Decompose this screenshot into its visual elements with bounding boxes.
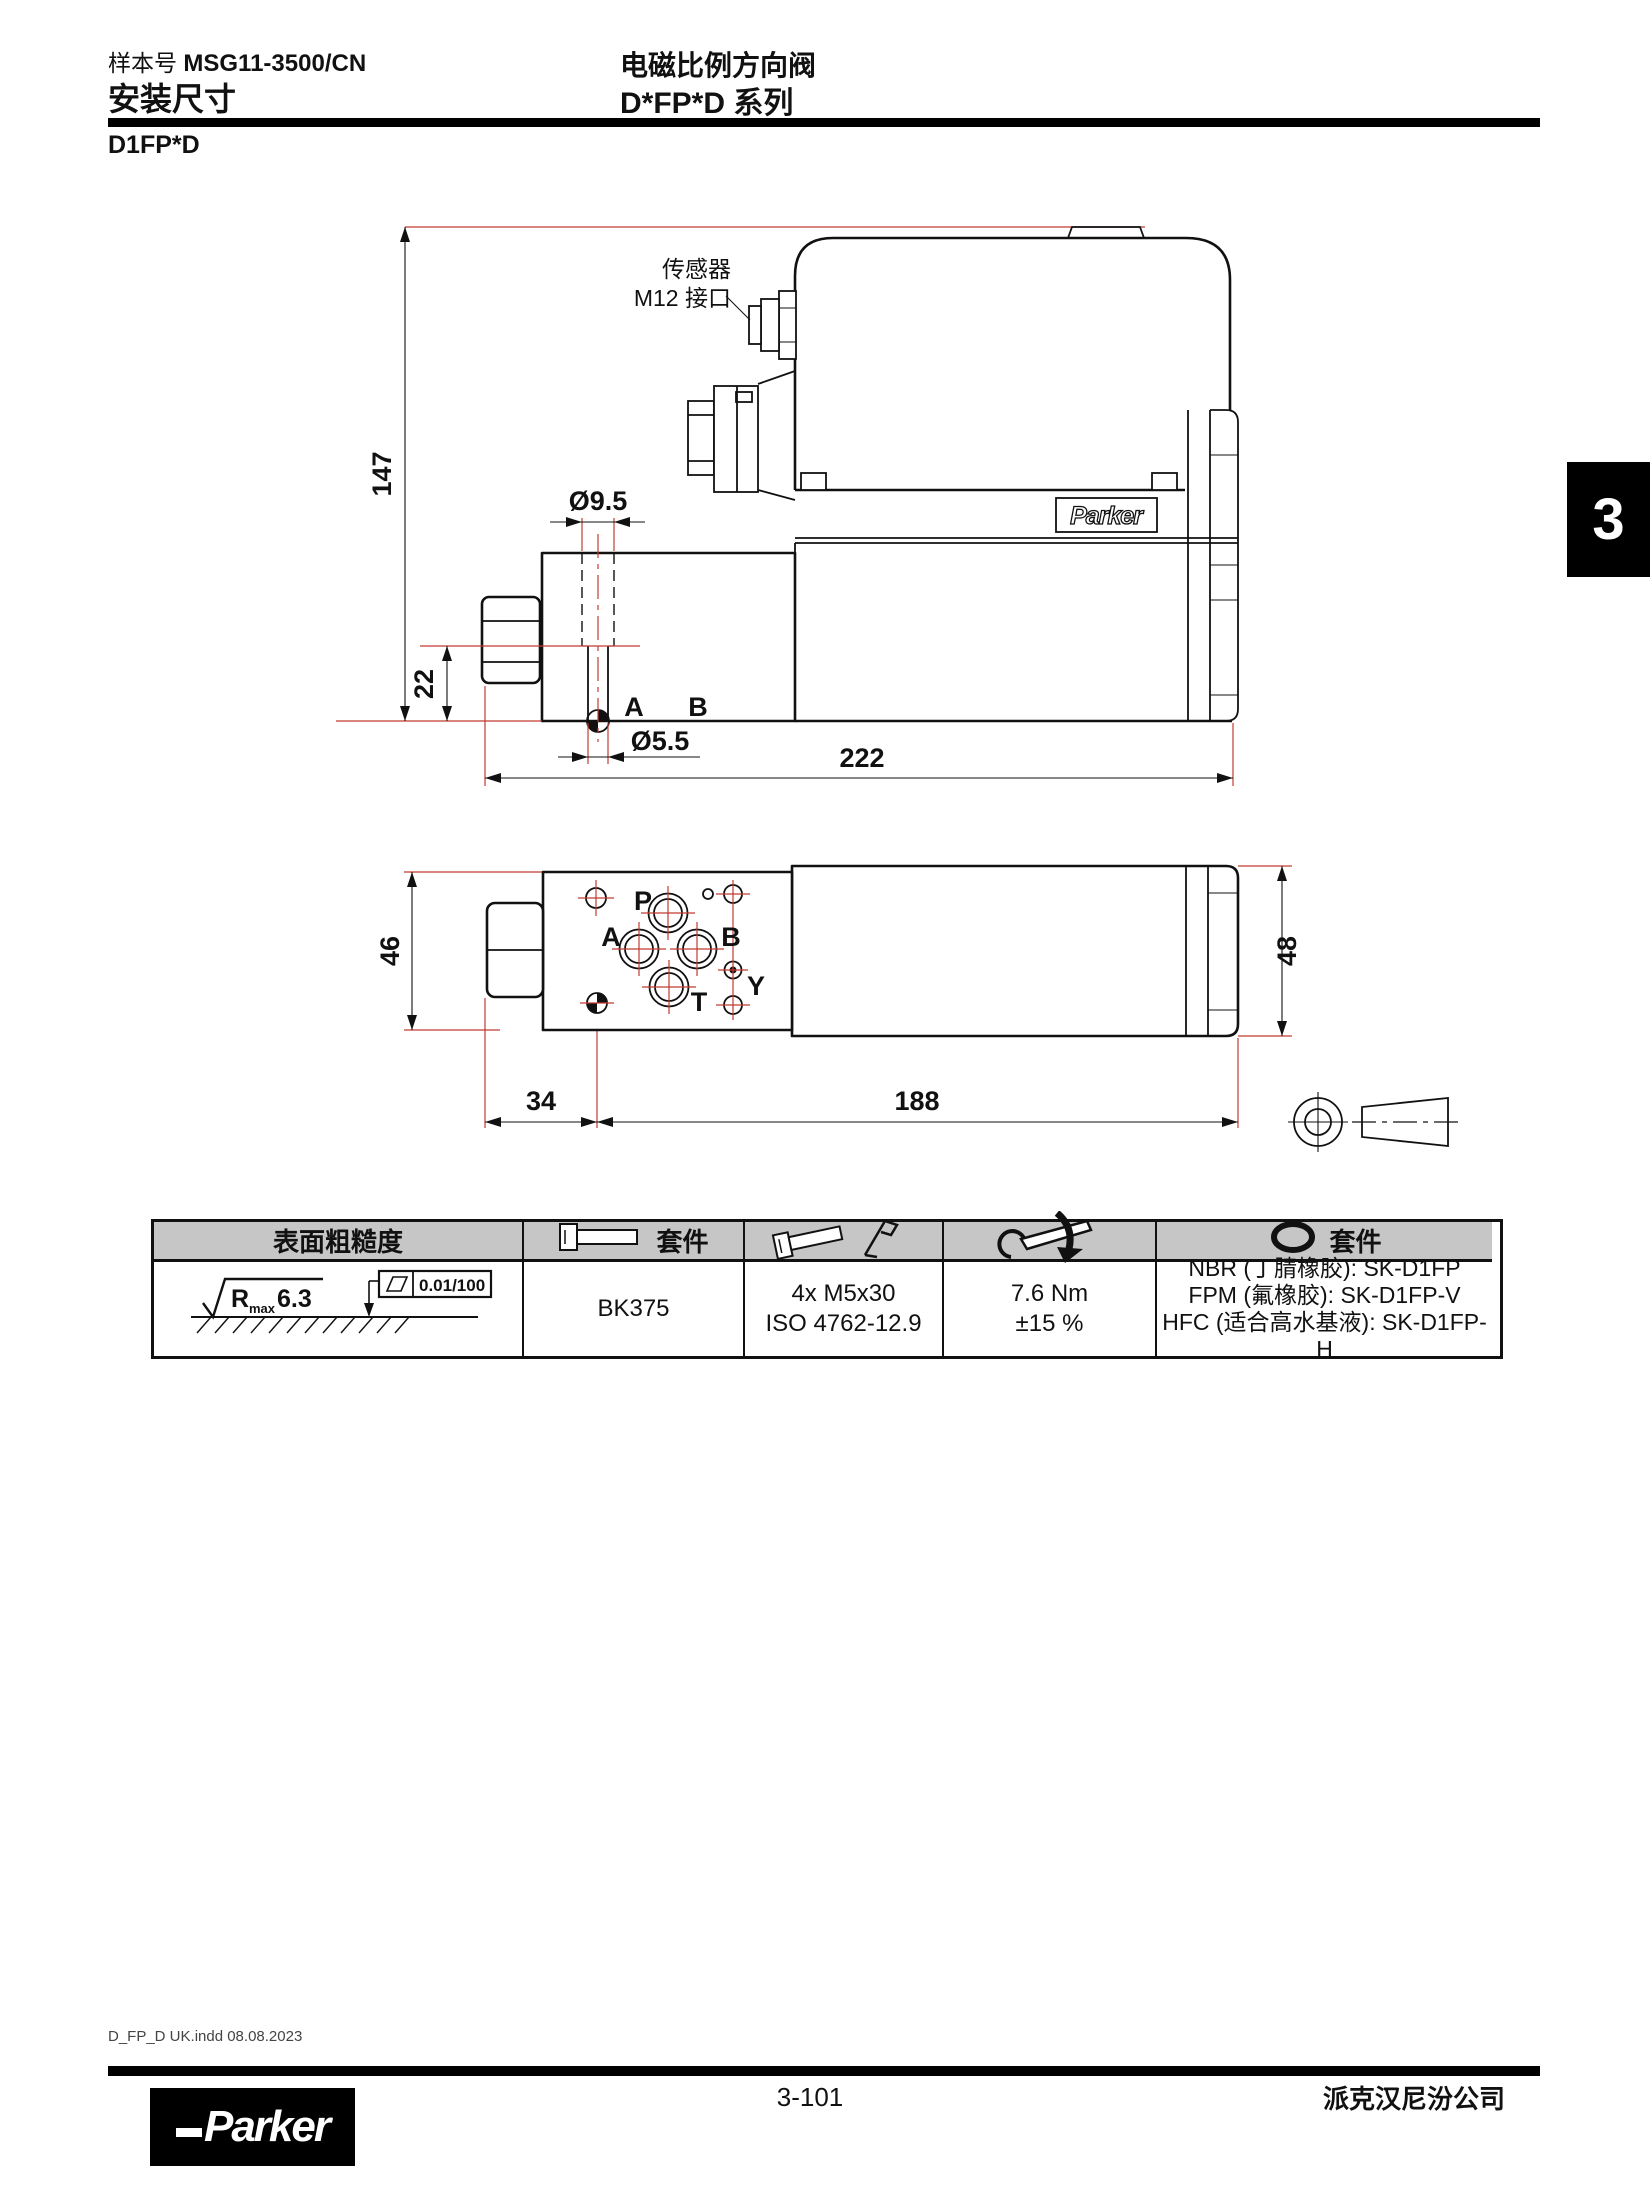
dim-46: 46 xyxy=(375,872,417,1030)
port-b-label: B xyxy=(721,922,741,952)
hex-nut-side xyxy=(482,597,540,683)
boltkit-header-label: 套件 xyxy=(656,1222,708,1259)
svg-text:6.3: 6.3 xyxy=(277,1285,312,1313)
roughness-header-label: 表面粗糙度 xyxy=(273,1222,403,1259)
brand-logo-plate: Parker xyxy=(1056,498,1157,532)
dim-5-5: Ø5.5 xyxy=(558,726,700,762)
hex-nut-port-view xyxy=(487,903,543,997)
svg-text:Ø5.5: Ø5.5 xyxy=(631,726,690,756)
mounting-spec-table: 表面粗糙度 套件 xyxy=(151,1219,1503,1359)
roughness-cell: R max 6.3 0.01/100 xyxy=(154,1262,524,1356)
parker-logo-bar xyxy=(176,2128,202,2137)
screws-cell: 4x M5x30 ISO 4762-12.9 xyxy=(745,1262,944,1356)
dim-9-5: Ø9.5 xyxy=(550,486,645,527)
side-view-drawing: Parker 传感器 M12 接口 xyxy=(336,227,1238,786)
svg-text:222: 222 xyxy=(839,743,884,773)
col-roughness-header: 表面粗糙度 xyxy=(154,1222,524,1262)
dim-147: 147 xyxy=(367,227,410,721)
port-y-label: Y xyxy=(747,971,765,1001)
dimension-drawing: Parker 传感器 M12 接口 xyxy=(0,0,1650,2200)
brand-logo-text: Parker xyxy=(1070,502,1144,530)
seals-header-label: 套件 xyxy=(1329,1222,1381,1259)
port-a-side-label: A xyxy=(624,692,644,722)
page-number: 3-101 xyxy=(700,2082,920,2113)
svg-text:max: max xyxy=(249,1301,276,1316)
parker-logo: Parker xyxy=(150,2088,355,2166)
svg-text:147: 147 xyxy=(367,451,397,496)
port-b-side-label: B xyxy=(688,692,708,722)
torque-cell: 7.6 Nm ±15 % xyxy=(944,1262,1157,1356)
dim-188: 188 xyxy=(597,1086,1238,1127)
imprint-text: D_FP_D UK.indd 08.08.2023 xyxy=(108,2028,302,2045)
footer-rule xyxy=(108,2066,1540,2076)
svg-text:46: 46 xyxy=(375,936,405,966)
svg-text:0.01/100: 0.01/100 xyxy=(419,1276,485,1295)
col-torque-header xyxy=(944,1222,1157,1262)
col-boltkit-header: 套件 xyxy=(524,1222,745,1262)
svg-text:Ø9.5: Ø9.5 xyxy=(569,486,628,516)
dim-34: 34 xyxy=(485,1086,597,1127)
sensor-annotation-line1: 传感器 xyxy=(662,256,731,282)
dim-22: 22 xyxy=(409,646,452,721)
surface-roughness-symbol: R max 6.3 0.01/100 xyxy=(173,1269,503,1349)
col-screws-header xyxy=(745,1222,944,1262)
seal-kit-hfc: HFC (适合高水基液): SK-D1FP-H xyxy=(1157,1309,1492,1363)
seal-kit-nbr: NBR (丁腈橡胶): SK-D1FP xyxy=(1157,1255,1492,1282)
port-p-label: P xyxy=(634,886,652,916)
bolt-kit-number: BK375 xyxy=(597,1295,669,1323)
projection-symbol xyxy=(1288,1092,1458,1152)
port-a-label: A xyxy=(601,922,621,952)
port-t-label: T xyxy=(691,987,708,1017)
svg-text:R: R xyxy=(231,1285,249,1313)
parker-logo-text: Parker xyxy=(204,2102,329,2152)
sensor-annotation-line2: M12 接口 xyxy=(634,285,731,311)
screws-standard: ISO 4762-12.9 xyxy=(765,1309,921,1339)
screw-and-gauge-icon xyxy=(769,1215,919,1266)
dim-48: 48 xyxy=(1272,866,1302,1036)
dim-222: 222 xyxy=(485,743,1233,783)
catalog-page: 样本号 MSG11-3500/CN 安装尺寸 电磁比例方向阀 D*FP*D 系列… xyxy=(0,0,1650,2200)
screw-icon xyxy=(558,1221,646,1260)
seal-kit-fpm: FPM (氟橡胶): SK-D1FP-V xyxy=(1157,1282,1492,1309)
company-name: 派克汉尼汾公司 xyxy=(1323,2079,1505,2116)
torque-value: 7.6 Nm xyxy=(1011,1279,1088,1309)
svg-text:188: 188 xyxy=(894,1086,939,1116)
port-view-drawing: P A B T Y 46 48 xyxy=(375,866,1302,1128)
m12-connector xyxy=(726,291,796,359)
seal-kits-cell: NBR (丁腈橡胶): SK-D1FP FPM (氟橡胶): SK-D1FP-V… xyxy=(1157,1262,1492,1356)
svg-text:22: 22 xyxy=(409,669,439,699)
svg-text:34: 34 xyxy=(526,1086,556,1116)
screws-size: 4x M5x30 xyxy=(765,1279,921,1309)
coil-connector xyxy=(688,371,795,500)
bolt-kit-cell: BK375 xyxy=(524,1262,745,1356)
svg-text:48: 48 xyxy=(1272,936,1302,966)
torque-tolerance: ±15 % xyxy=(1011,1309,1088,1339)
